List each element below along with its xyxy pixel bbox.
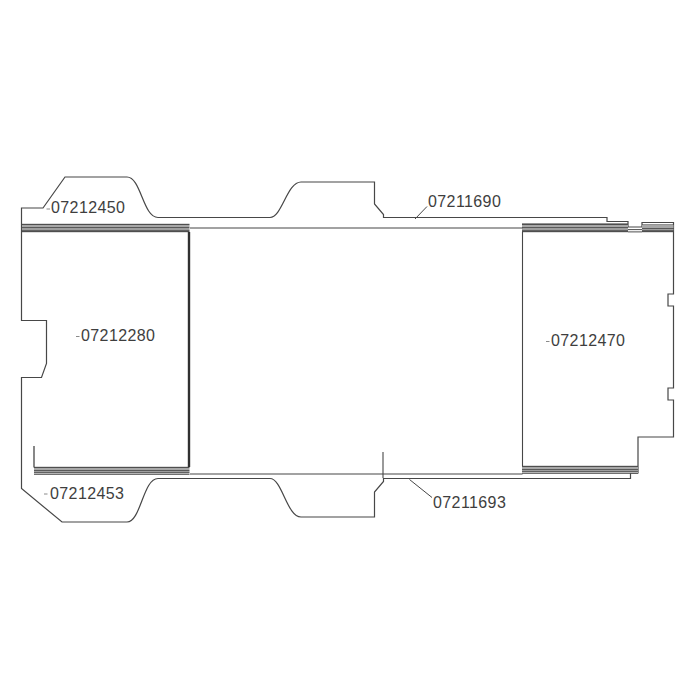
right-panel-bottom-band bbox=[522, 466, 638, 474]
line-art bbox=[0, 0, 700, 700]
part-number-top-right: 07211690 bbox=[428, 194, 501, 210]
left-panel-top-band bbox=[22, 224, 190, 232]
part-number-top-left: 07212450 bbox=[51, 200, 125, 216]
diagram-canvas: 07212450 07211690 07212280 07212470 0721… bbox=[0, 0, 700, 700]
part-number-right-panel: 07212470 bbox=[551, 333, 625, 349]
right-panel-top-band-left bbox=[522, 223, 628, 232]
part-number-bottom-left: 07212453 bbox=[50, 486, 124, 502]
part-number-left-panel: 07212280 bbox=[81, 328, 155, 344]
right-panel-top-band-right bbox=[642, 224, 674, 232]
leader-line-07211693 bbox=[410, 480, 433, 498]
part-number-bottom-right: 07211693 bbox=[433, 495, 506, 511]
left-panel-bottom-band bbox=[34, 467, 190, 475]
